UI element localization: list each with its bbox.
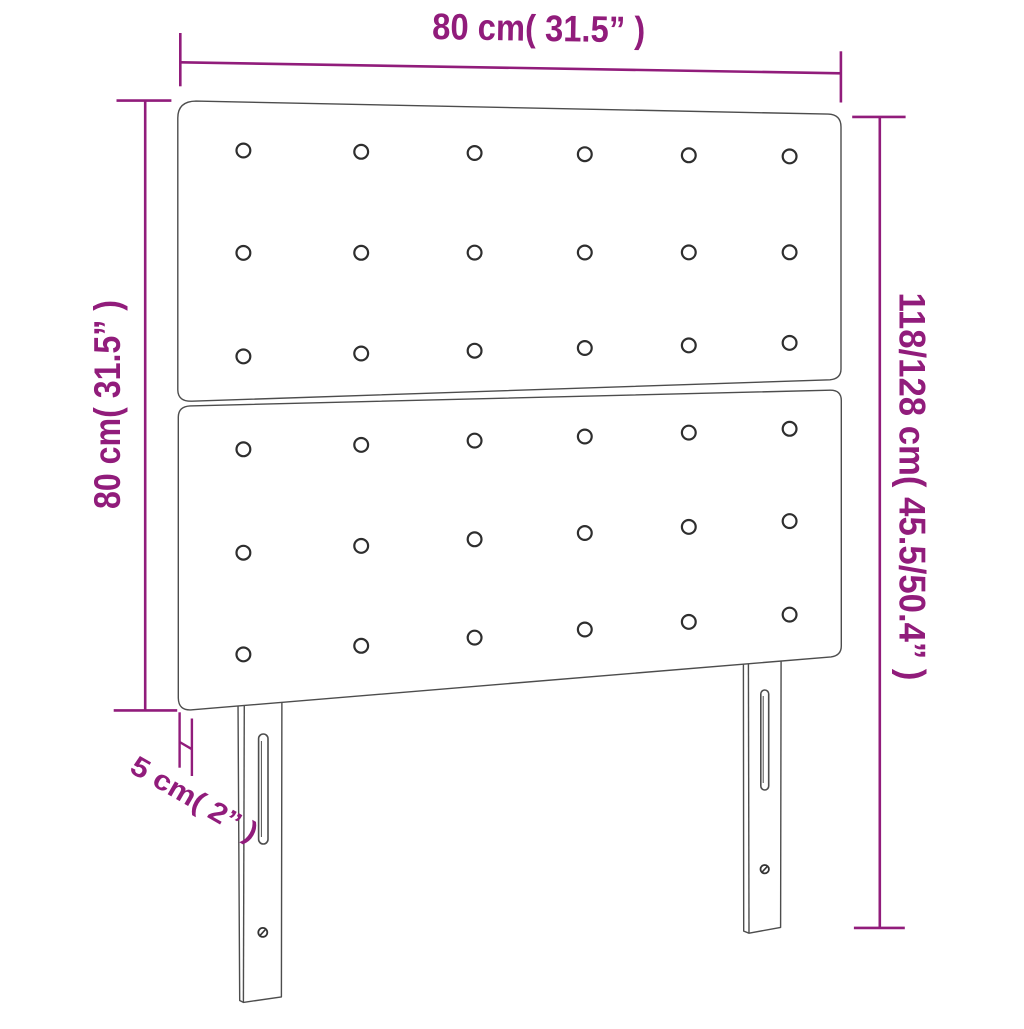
svg-text:118/128 cm( 45.5/50.4” ): 118/128 cm( 45.5/50.4” ) — [891, 293, 932, 681]
svg-text:80 cm( 31.5” ): 80 cm( 31.5” ) — [87, 300, 128, 509]
svg-text:80 cm( 31.5” ): 80 cm( 31.5” ) — [432, 6, 646, 51]
